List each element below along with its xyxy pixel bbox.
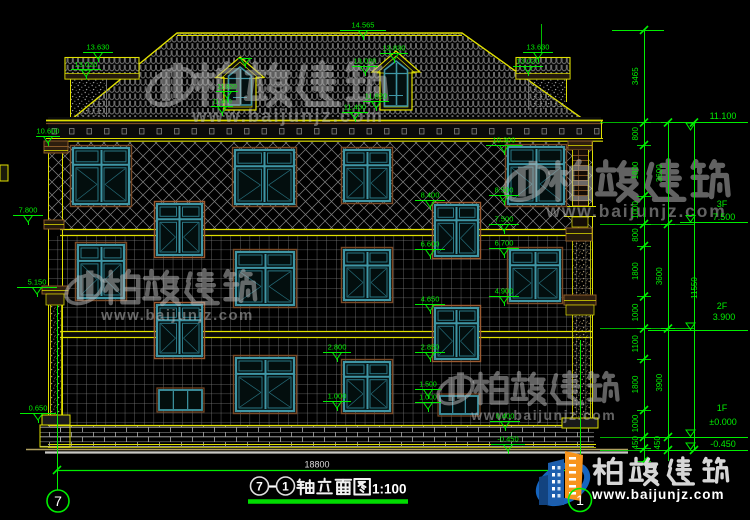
svg-text:11.400: 11.400 xyxy=(344,103,366,112)
svg-text:6.700: 6.700 xyxy=(495,239,514,248)
svg-text:13.630: 13.630 xyxy=(527,43,550,52)
svg-text:2.850: 2.850 xyxy=(421,343,440,352)
svg-text:3465: 3465 xyxy=(631,67,640,85)
svg-text:10.300: 10.300 xyxy=(493,136,516,145)
svg-text:7: 7 xyxy=(256,480,263,494)
svg-text:3600: 3600 xyxy=(655,164,664,182)
svg-text:11.820: 11.820 xyxy=(365,92,387,101)
svg-text:1000: 1000 xyxy=(631,414,640,432)
svg-text:800: 800 xyxy=(631,228,640,242)
svg-text:1.500: 1.500 xyxy=(419,382,437,389)
svg-text:2F: 2F xyxy=(717,301,728,311)
svg-text:1.000: 1.000 xyxy=(419,395,437,402)
svg-text:1.000: 1.000 xyxy=(328,392,347,401)
svg-text:7.800: 7.800 xyxy=(19,206,38,215)
svg-text:www.baijunjz.com: www.baijunjz.com xyxy=(100,308,254,324)
svg-text:11.820: 11.820 xyxy=(217,84,237,91)
svg-text:1F: 1F xyxy=(717,403,728,413)
svg-text:1000: 1000 xyxy=(631,201,640,219)
svg-text:13.020: 13.020 xyxy=(354,57,377,66)
svg-text:11.400: 11.400 xyxy=(212,99,232,106)
svg-text:13.630: 13.630 xyxy=(87,43,110,52)
svg-text:11.100: 11.100 xyxy=(710,111,737,121)
svg-text:8.500: 8.500 xyxy=(495,186,514,195)
svg-text:3900: 3900 xyxy=(655,373,664,391)
svg-text:13.830: 13.830 xyxy=(383,44,406,53)
svg-text:8.400: 8.400 xyxy=(421,191,440,200)
svg-text:2.800: 2.800 xyxy=(328,343,347,352)
svg-text:4.900: 4.900 xyxy=(495,287,514,296)
svg-text:-0.450: -0.450 xyxy=(710,439,736,449)
svg-text:13.020: 13.020 xyxy=(517,57,540,66)
svg-text:1000: 1000 xyxy=(631,303,640,321)
svg-text:1: 1 xyxy=(282,480,289,494)
svg-text:5.150: 5.150 xyxy=(28,278,47,287)
svg-text:13.020: 13.020 xyxy=(75,60,98,69)
svg-text:14.565: 14.565 xyxy=(352,21,375,30)
svg-text:3F: 3F xyxy=(717,199,728,209)
svg-text:1800: 1800 xyxy=(631,375,640,393)
svg-text:7: 7 xyxy=(54,493,62,509)
svg-text:10.600: 10.600 xyxy=(37,127,60,136)
svg-text:www.baijunjz.com: www.baijunjz.com xyxy=(591,487,725,502)
svg-text:3600: 3600 xyxy=(655,267,664,285)
svg-text:11550: 11550 xyxy=(690,277,699,299)
svg-text:6.600: 6.600 xyxy=(421,240,440,249)
svg-text:800: 800 xyxy=(631,127,640,141)
svg-text:1: 1 xyxy=(576,492,584,508)
svg-text:0.650: 0.650 xyxy=(29,404,48,413)
svg-text:4.650: 4.650 xyxy=(421,295,440,304)
svg-text:www.baijunjz.com: www.baijunjz.com xyxy=(470,407,616,423)
svg-text:1800: 1800 xyxy=(631,262,640,280)
svg-text:±0.000: ±0.000 xyxy=(709,417,736,427)
svg-text:-0.450: -0.450 xyxy=(497,435,518,444)
svg-text:1800: 1800 xyxy=(631,161,640,179)
svg-text:7.500: 7.500 xyxy=(713,212,736,222)
svg-text:18800: 18800 xyxy=(304,460,329,470)
svg-text:1100: 1100 xyxy=(631,335,640,353)
svg-text:0.400: 0.400 xyxy=(496,412,515,421)
svg-text:3.900: 3.900 xyxy=(713,312,736,322)
svg-text:7.500: 7.500 xyxy=(495,215,514,224)
svg-text:1:100: 1:100 xyxy=(372,482,407,497)
